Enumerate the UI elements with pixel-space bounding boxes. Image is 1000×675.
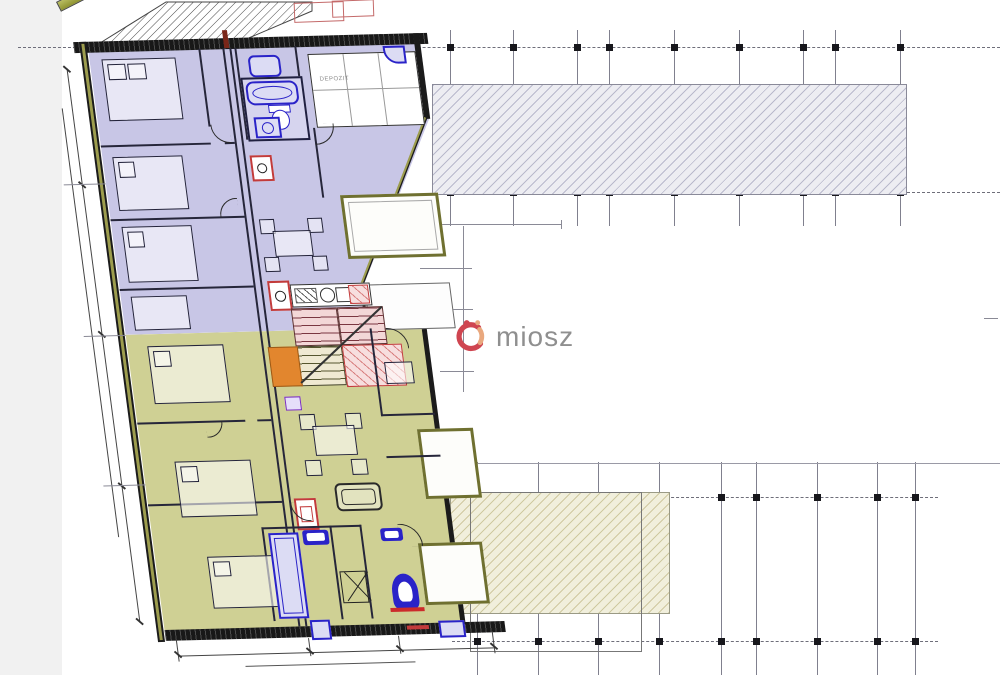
shaft-marker (267, 281, 293, 311)
extension-line (398, 636, 401, 654)
shower-inner (274, 538, 304, 614)
pillow (118, 162, 136, 178)
partition (257, 419, 271, 421)
toilet-bowl (397, 581, 414, 601)
washer (253, 117, 282, 139)
storage-grid-line (313, 87, 419, 91)
chimney-shaft (222, 30, 229, 48)
storage-room: DEPOZIT (307, 51, 425, 128)
watermark-text: miosz (496, 321, 574, 353)
washer-drum (261, 122, 275, 134)
duct-cross (348, 571, 368, 601)
floorplan-page: DEPOZIT (0, 0, 1000, 675)
pillow (180, 466, 199, 482)
dimension-line (245, 661, 415, 666)
pillow (127, 63, 147, 79)
dining-table (272, 230, 313, 257)
bed (112, 155, 189, 211)
chair (305, 460, 323, 476)
shaft-circle (257, 163, 268, 173)
sink (302, 530, 330, 546)
bed (147, 344, 231, 404)
upper-floor-outline-red (332, 0, 375, 18)
sink-basin (319, 287, 336, 302)
shaft-marker (249, 155, 274, 181)
pillow (213, 561, 232, 576)
chair (264, 257, 281, 272)
stair-landing (268, 346, 303, 387)
extension-line (492, 631, 496, 653)
counter-hatch (294, 288, 318, 304)
pillow (127, 231, 145, 247)
bed (101, 57, 183, 121)
entry-door-blue (310, 620, 333, 640)
dimension-line (178, 647, 494, 656)
shaft-circle (274, 291, 286, 302)
threshold-red (407, 625, 430, 630)
wardrobe (131, 295, 191, 330)
extension-line (176, 640, 180, 662)
sink-basin (306, 533, 325, 541)
duct-box (339, 571, 369, 604)
sink-basin (384, 531, 399, 538)
upper-loggia (340, 193, 446, 259)
desk (384, 361, 415, 384)
bathtub (247, 55, 282, 78)
chair (312, 256, 329, 271)
watermark: miosz (452, 318, 574, 356)
kitchen-red-hatch (348, 285, 370, 304)
stair-flight (291, 307, 342, 346)
loggia-inner-line (348, 200, 439, 252)
bathtub (245, 80, 300, 105)
extension-line (308, 638, 311, 656)
bathroom-upper (240, 76, 310, 141)
shaft-violet (284, 396, 302, 410)
chair (351, 459, 369, 475)
pillow (107, 64, 127, 80)
sofa-cushion (341, 488, 377, 505)
pillow (153, 351, 172, 367)
dining-table (312, 425, 358, 456)
miosz-logo-icon (452, 318, 490, 356)
sofa (334, 482, 384, 511)
bed (121, 225, 198, 283)
window-blue (438, 620, 466, 638)
lower-loggia-b (418, 542, 490, 605)
storage-room-label: DEPOZIT (319, 76, 349, 83)
lower-loggia-a (417, 428, 482, 499)
tub-basin (251, 85, 293, 100)
bed (174, 460, 257, 518)
